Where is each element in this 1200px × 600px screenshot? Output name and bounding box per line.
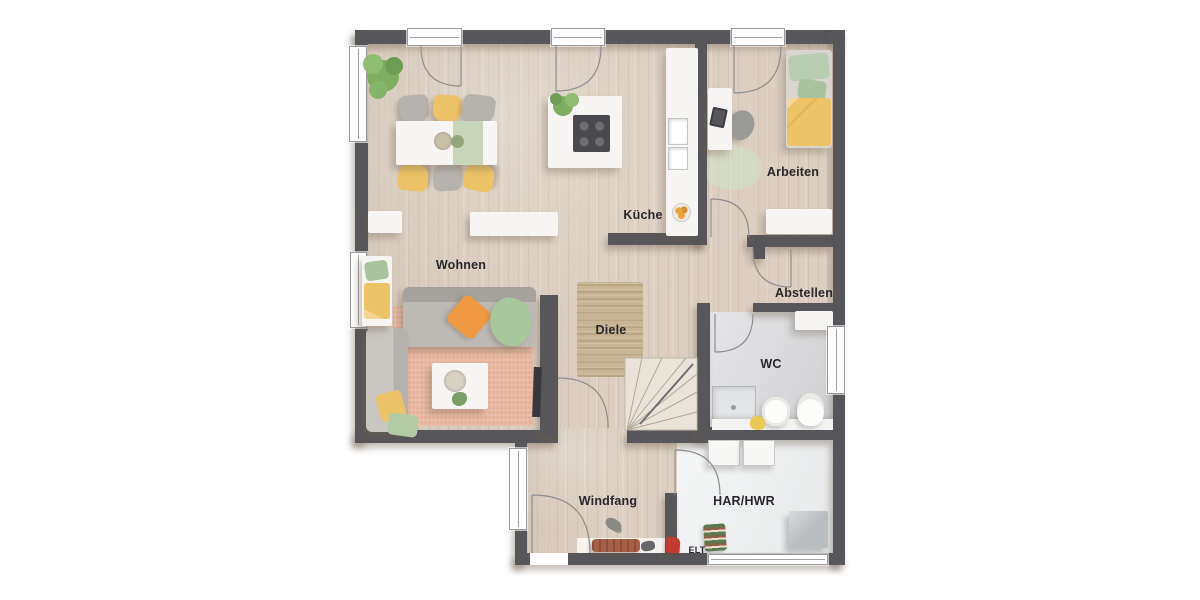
daybed-blanket xyxy=(787,98,831,146)
toilet xyxy=(797,393,824,426)
wall xyxy=(833,30,845,565)
shoe-bench xyxy=(592,539,640,552)
dining-chair xyxy=(432,163,462,192)
room-label-windfang: Windfang xyxy=(579,494,637,508)
room-label-diele: Diele xyxy=(596,323,627,337)
room-label-kueche: Küche xyxy=(623,208,662,222)
chaise-pillow-green xyxy=(387,412,420,438)
freezer xyxy=(789,511,828,548)
floor-entry-extension xyxy=(527,428,677,553)
coffee-table-tray xyxy=(444,370,466,392)
sideboard xyxy=(368,211,402,233)
kitchen-unit-inset xyxy=(668,118,688,145)
room-label-wohnen: Wohnen xyxy=(436,258,486,272)
dining-chair xyxy=(432,94,461,122)
lounge-pillow xyxy=(364,259,389,281)
sideboard xyxy=(766,209,832,234)
shower-drain xyxy=(731,405,736,410)
window xyxy=(708,554,828,565)
room-label-har-hwr: HAR/HWR xyxy=(713,494,775,508)
wall xyxy=(747,235,833,247)
wall xyxy=(753,247,765,259)
room-label-arbeiten: Arbeiten xyxy=(767,165,819,179)
window xyxy=(827,326,845,394)
window xyxy=(407,28,462,46)
dryer xyxy=(743,440,775,466)
floorplan-canvas: Wohnen Küche Arbeiten Abstellen Diele WC… xyxy=(0,0,1200,600)
kitchen-unit-inset xyxy=(668,147,688,170)
front-door-opening xyxy=(530,553,568,565)
room-label-abstellen: Abstellen xyxy=(775,286,833,300)
washing-machine xyxy=(708,440,740,466)
fruit-bowl xyxy=(672,203,691,222)
window xyxy=(349,46,367,142)
table-centerpiece xyxy=(451,135,464,148)
daybed-pillow xyxy=(788,52,830,81)
dining-chair xyxy=(398,94,431,124)
window xyxy=(551,28,605,46)
office-rug xyxy=(704,146,762,190)
sink xyxy=(762,397,790,426)
dining-chair xyxy=(397,163,429,193)
sideboard xyxy=(470,212,558,236)
room-label-wc: WC xyxy=(760,357,781,371)
table-centerpiece xyxy=(434,132,452,150)
cooktop xyxy=(573,115,610,152)
laundry-basket xyxy=(703,523,727,551)
wall-tv-partition xyxy=(540,295,558,435)
window xyxy=(731,28,785,46)
lounge-blanket xyxy=(364,283,390,319)
room-label-elt: ELT xyxy=(689,545,706,555)
wall xyxy=(697,303,710,430)
electrical-panel xyxy=(665,537,680,554)
dining-chair xyxy=(461,93,496,124)
window xyxy=(509,448,527,530)
